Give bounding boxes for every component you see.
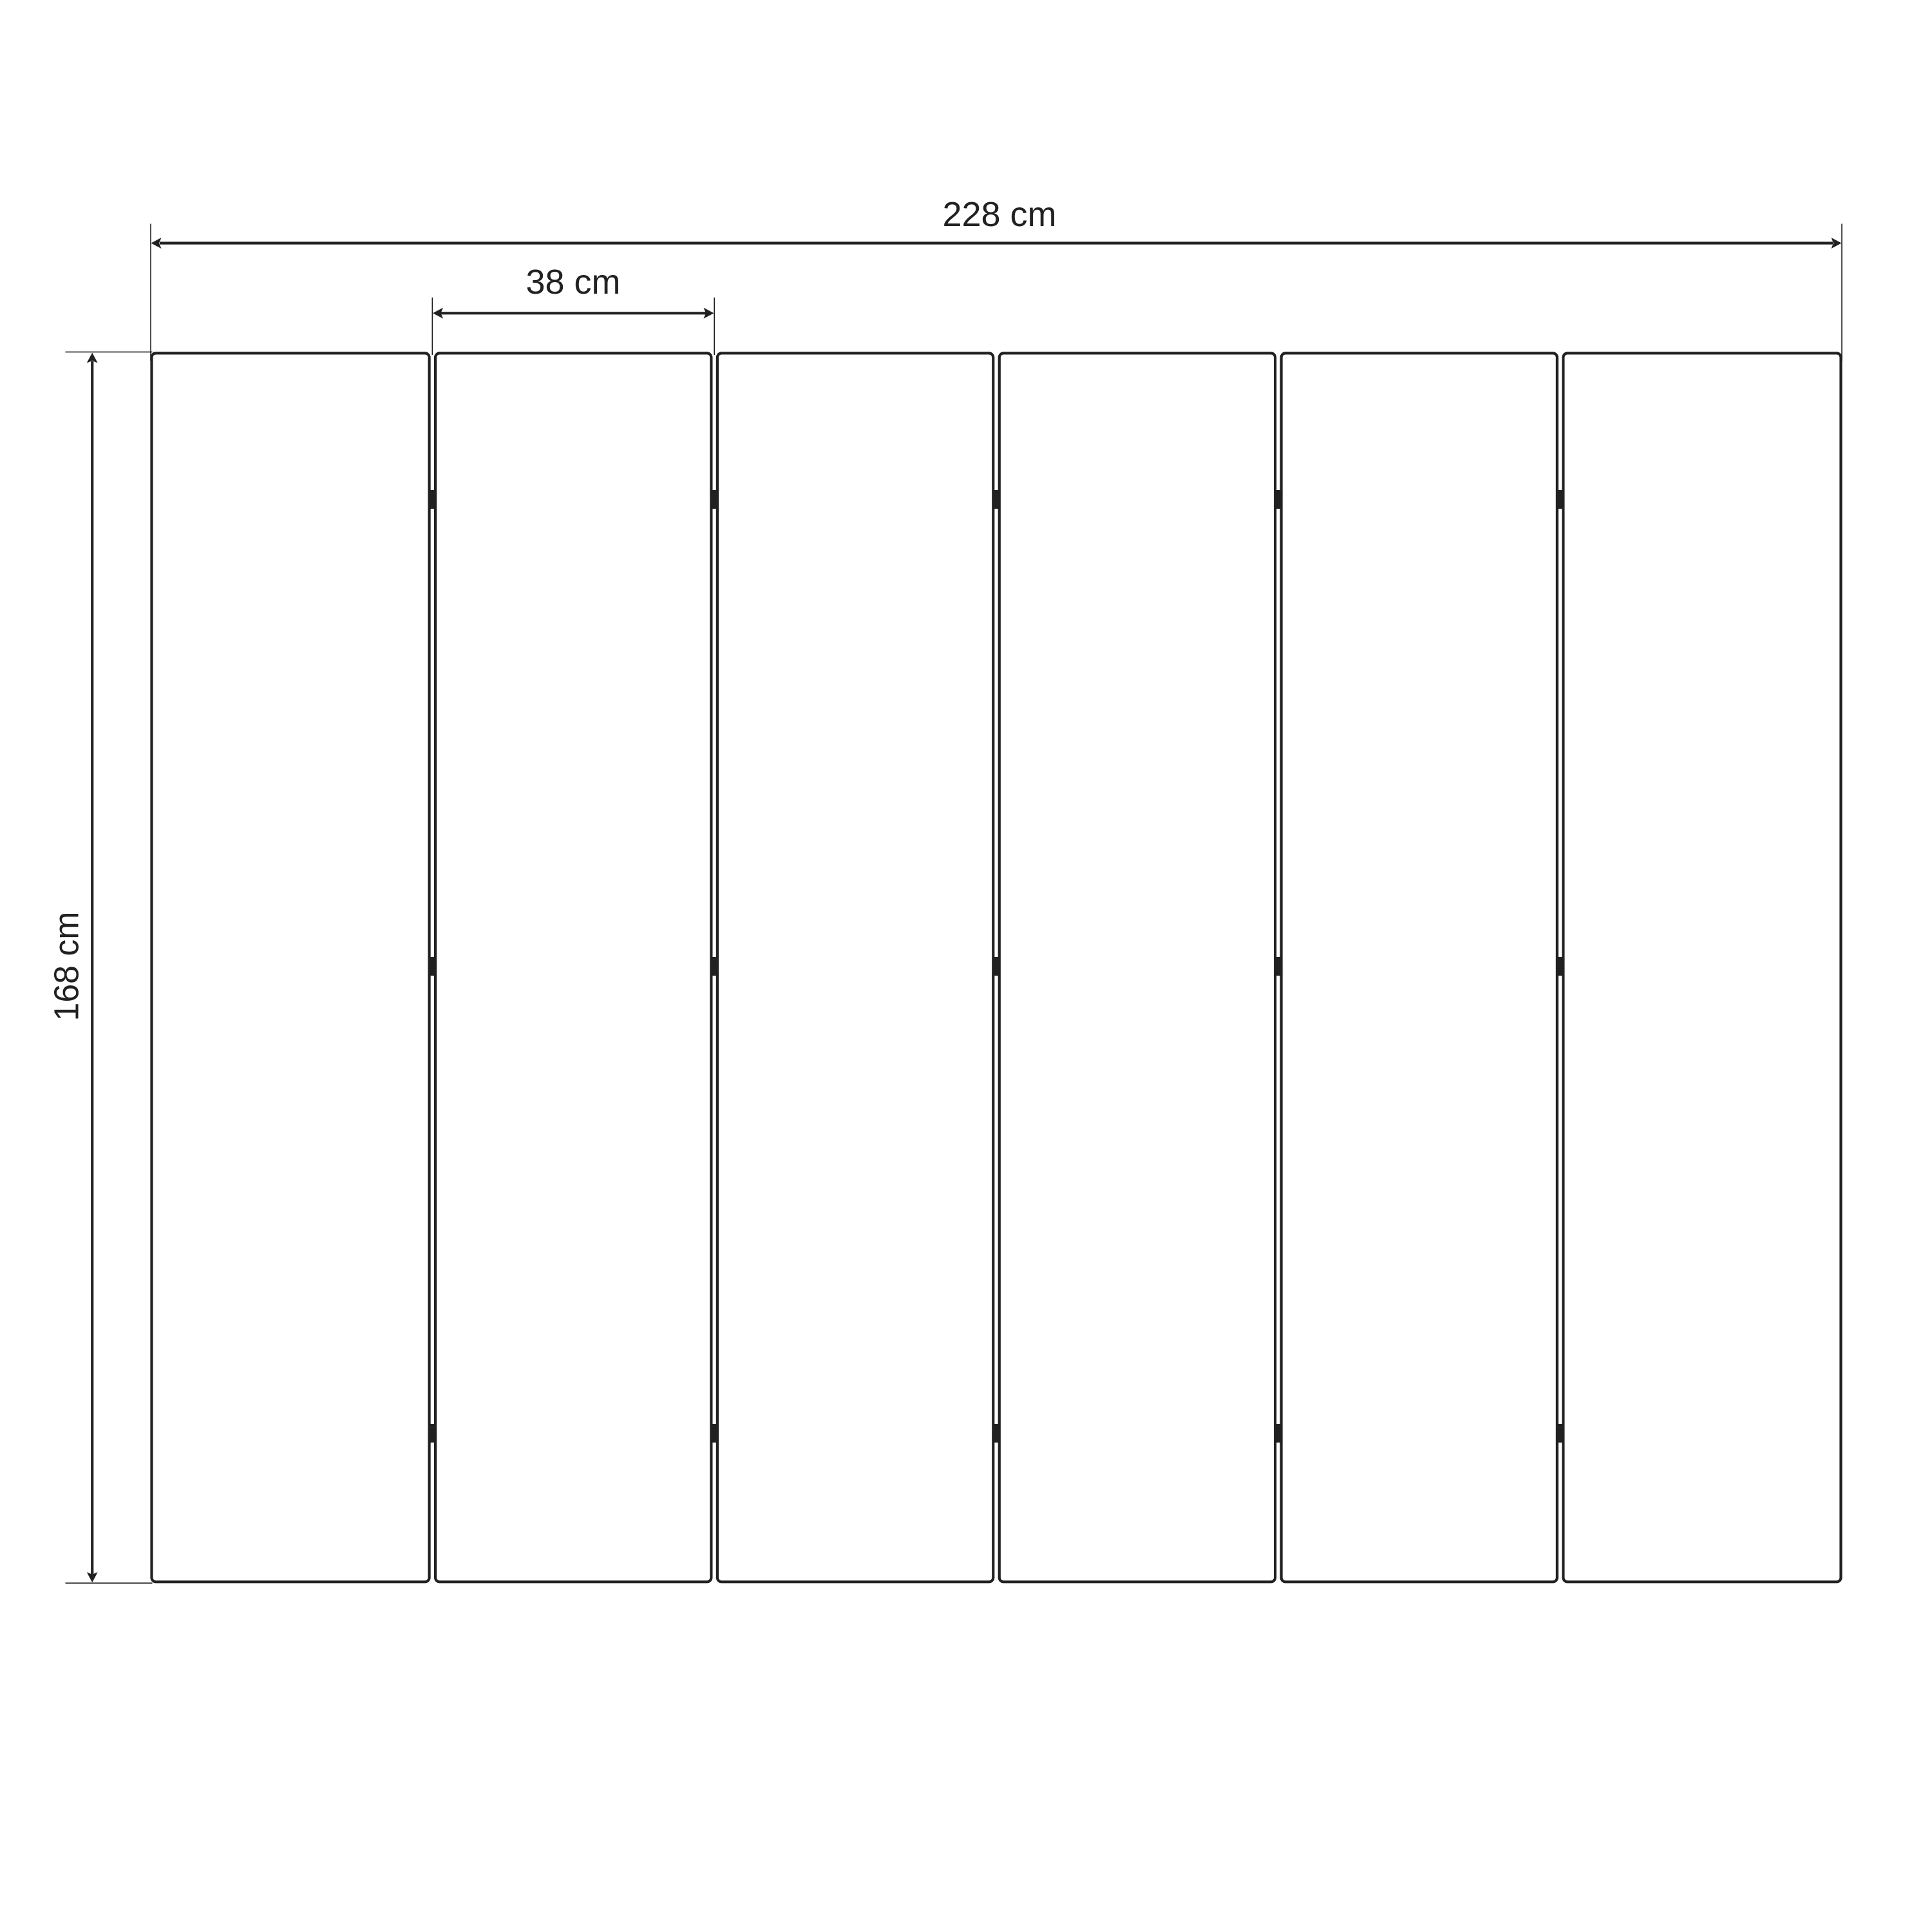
- svg-text:38 cm: 38 cm: [526, 263, 620, 301]
- svg-text:168 cm: 168 cm: [48, 912, 86, 1021]
- svg-text:228 cm: 228 cm: [942, 195, 1056, 234]
